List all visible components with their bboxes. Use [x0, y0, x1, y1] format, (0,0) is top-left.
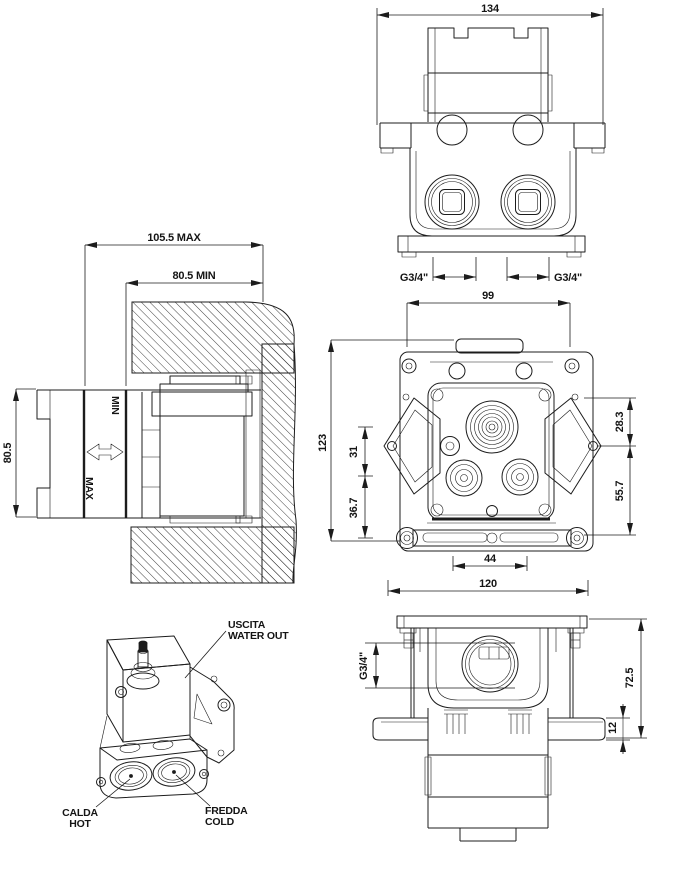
dim-outlets-to-base-label: 36.7 — [348, 498, 360, 519]
port-left-thread-label: G3/4" — [400, 272, 428, 284]
dim-flange-thickness-label: 12 — [607, 722, 619, 734]
dim-overall-height-label: 123 — [317, 434, 329, 452]
dim-overall-width-label: 134 — [481, 3, 500, 15]
dim-top-holes-to-center-label: 28.3 — [614, 412, 626, 433]
dim-center-to-outlets-label: 31 — [348, 446, 360, 458]
drawing-svg: 134 G3/4" G3/4" — [0, 0, 695, 878]
technical-drawing-page: 134 G3/4" G3/4" — [0, 0, 695, 878]
page-background — [0, 0, 695, 878]
dim-overall-width-front-label: 120 — [479, 578, 497, 590]
outlet-label-english: WATER OUT — [228, 630, 289, 642]
dim-flange-width-label: 99 — [482, 290, 494, 302]
plaster-min-label: MIN — [109, 396, 121, 415]
cold-label-english: COLD — [205, 816, 235, 828]
bottom-port-thread-label: G3/4" — [358, 652, 370, 680]
hot-label-english: HOT — [69, 818, 91, 830]
dim-body-height-label: 80.5 — [2, 443, 14, 464]
port-right-thread-label: G3/4" — [554, 272, 582, 284]
plaster-max-label: MAX — [83, 477, 95, 500]
dim-center-to-base-label: 55.7 — [614, 481, 626, 502]
dim-depth-max-label: 105.5 MAX — [147, 232, 201, 244]
dim-outlet-spacing-label: 44 — [484, 553, 497, 565]
dim-bottom-height-label: 72.5 — [624, 668, 636, 689]
dim-depth-min-label: 80.5 MIN — [172, 270, 215, 282]
